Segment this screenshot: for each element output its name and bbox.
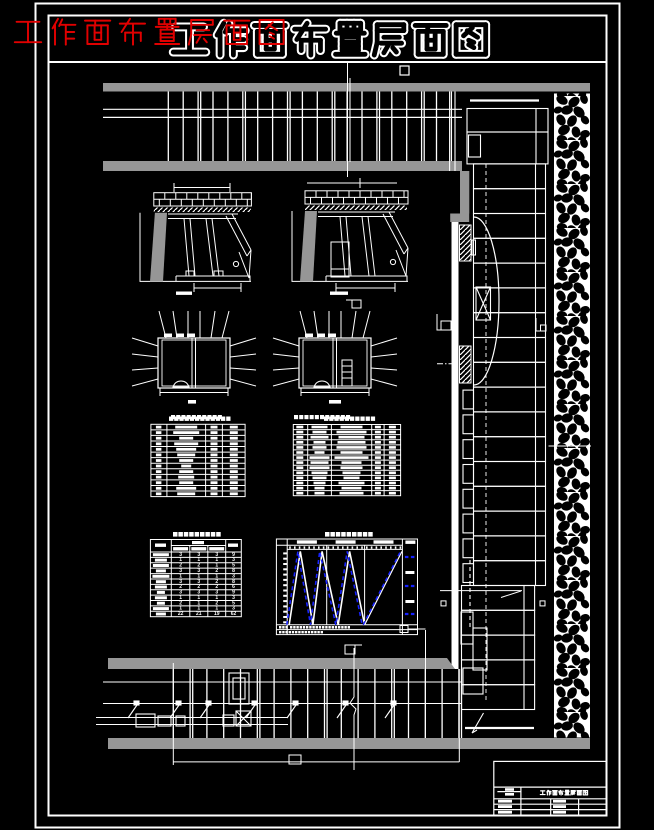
svg-text:22: 22 xyxy=(178,611,184,617)
svg-text:19: 19 xyxy=(214,611,220,617)
svg-text:21: 21 xyxy=(196,611,202,617)
svg-text:62: 62 xyxy=(231,611,237,617)
